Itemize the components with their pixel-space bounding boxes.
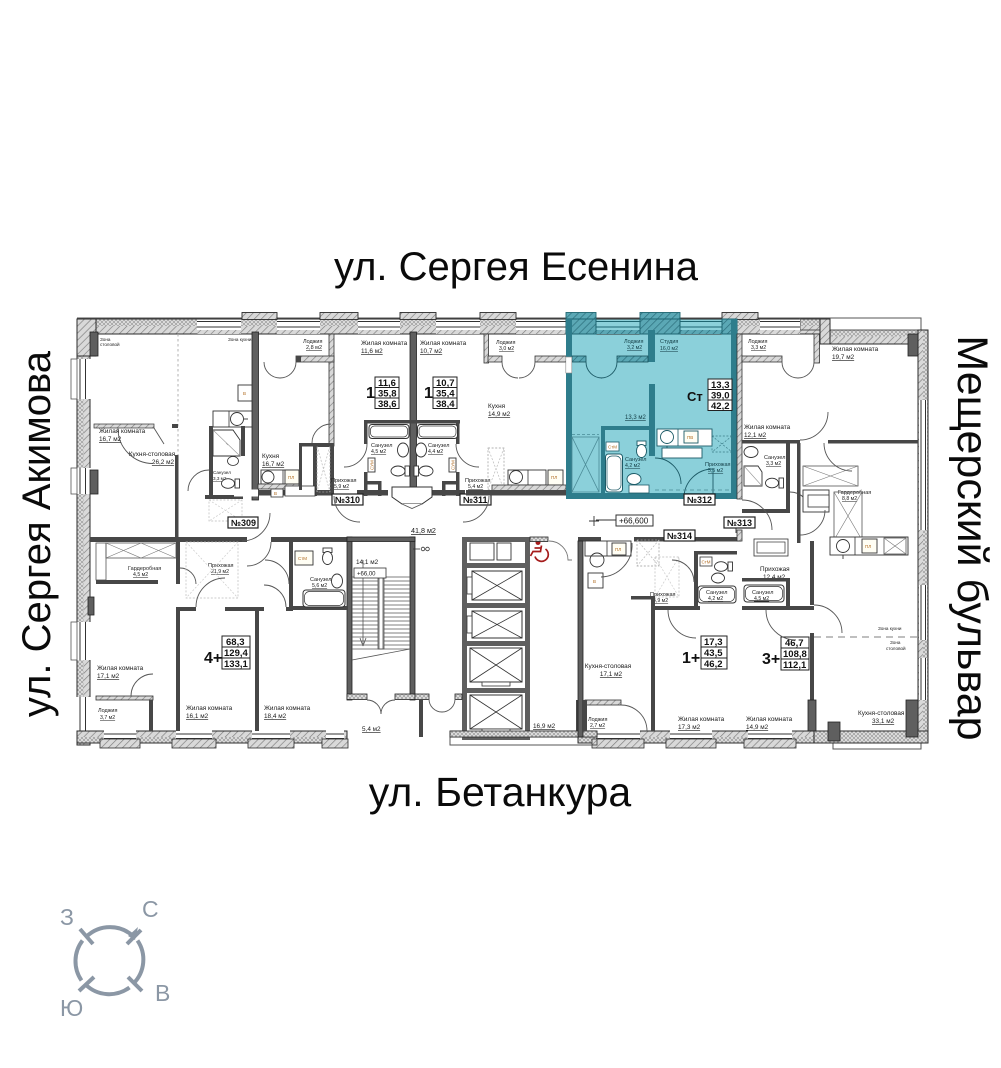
svg-text:+66,00: +66,00 [357,572,376,578]
svg-text:17,1 м2: 17,1 м2 [600,671,623,678]
svg-text:ул. Бетанкура: ул. Бетанкура [369,769,632,815]
svg-text:СтМ: СтМ [298,556,307,561]
svg-text:12,1 м2: 12,1 м2 [744,432,767,439]
svg-text:42,2: 42,2 [711,401,730,412]
svg-text:ПЛ: ПЛ [551,475,557,480]
svg-text:68,3: 68,3 [226,637,245,648]
svg-text:4,4 м2: 4,4 м2 [428,449,443,455]
svg-text:Ст: Ст [687,389,703,404]
svg-text:1: 1 [366,385,375,402]
svg-text:5,9 м2: 5,9 м2 [334,484,349,490]
svg-text:43,5: 43,5 [704,648,723,659]
svg-text:Зона кухни: Зона кухни [878,626,902,631]
svg-text:Прихожая: Прихожая [760,566,790,573]
svg-text:№314: №314 [667,531,692,541]
svg-text:ПЛ: ПЛ [288,475,294,480]
svg-text:Жилая комната: Жилая комната [744,424,791,431]
svg-text:Кухня-столовая: Кухня-столовая [858,710,905,717]
svg-text:41,8 м2: 41,8 м2 [411,526,436,535]
svg-text:Жилая комната: Жилая комната [99,428,146,435]
svg-text:№309: №309 [231,518,256,528]
svg-text:№311: №311 [463,495,488,505]
svg-text:18,4 м2: 18,4 м2 [264,713,287,720]
svg-text:Жилая комната: Жилая комната [186,705,233,712]
svg-text:Ю: Ю [60,995,83,1021]
svg-text:10,7 м2: 10,7 м2 [420,348,443,355]
svg-text:С: С [142,896,159,922]
svg-text:4,5 м2: 4,5 м2 [371,449,386,455]
svg-text:5,4 м2: 5,4 м2 [362,726,381,733]
svg-text:2,8 м2: 2,8 м2 [306,345,322,351]
svg-text:4,2 м2: 4,2 м2 [708,596,723,602]
svg-text:СтМ: СтМ [608,445,617,450]
svg-text:Жилая комната: Жилая комната [97,665,144,672]
svg-text:СУМ: СУМ [370,460,375,470]
svg-text:38,6: 38,6 [378,399,397,410]
svg-text:В: В [155,980,170,1006]
svg-text:17,3: 17,3 [704,637,723,648]
svg-text:Санузел: Санузел [213,470,231,475]
svg-text:ул. Сергея Есенина: ул. Сергея Есенина [334,245,699,289]
svg-text:4,2 м2: 4,2 м2 [625,463,640,469]
svg-text:14,1 м2: 14,1 м2 [356,559,379,566]
svg-text:В: В [593,579,596,584]
svg-text:38,4: 38,4 [436,399,455,410]
svg-text:16,0 м2: 16,0 м2 [660,346,678,352]
svg-text:СУМ: СУМ [451,460,456,470]
svg-text:Жилая комната: Жилая комната [361,340,408,347]
svg-text:Жилая комната: Жилая комната [746,716,793,723]
svg-text:5,4 м2: 5,4 м2 [468,484,483,490]
svg-text:4,5 м2: 4,5 м2 [754,596,769,602]
svg-text:3,7 м2: 3,7 м2 [100,715,115,721]
svg-text:№310: №310 [335,495,360,505]
svg-text:13,3 м2: 13,3 м2 [625,415,646,421]
svg-text:3+: 3+ [762,651,780,668]
svg-text:столовой: столовой [886,645,906,651]
svg-text:1: 1 [424,385,433,402]
svg-text:Кухня-столовая: Кухня-столовая [129,451,176,458]
svg-text:№312: №312 [687,495,712,505]
svg-text:19,7 м2: 19,7 м2 [832,354,855,361]
svg-text:129,4: 129,4 [224,648,248,659]
svg-text:16,1 м2: 16,1 м2 [186,713,209,720]
svg-text:СтМ: СтМ [702,560,711,565]
svg-text:112,1: 112,1 [783,660,807,671]
svg-text:В: В [274,491,277,496]
svg-text:ПЛ: ПЛ [615,547,621,552]
svg-text:Жилая комната: Жилая комната [678,716,725,723]
svg-text:ул. Сергея Акимова: ул. Сергея Акимова [15,350,59,717]
svg-text:В: В [243,391,246,396]
svg-text:16,9 м2: 16,9 м2 [533,723,556,730]
svg-text:Кухня-столовая: Кухня-столовая [585,663,632,670]
svg-text:Зона кухни: Зона кухни [228,337,252,342]
svg-text:2,7 м2: 2,7 м2 [590,723,605,729]
svg-text:Жилая комната: Жилая комната [264,705,311,712]
svg-text:14,9 м2: 14,9 м2 [488,411,511,418]
svg-text:4,9 м2: 4,9 м2 [653,598,668,604]
svg-text:З: З [60,904,74,930]
svg-text:3,3 м2: 3,3 м2 [766,461,781,467]
svg-text:16,7 м2: 16,7 м2 [262,461,285,468]
svg-text:33,1 м2: 33,1 м2 [872,718,895,725]
svg-text:17,3 м2: 17,3 м2 [678,724,701,731]
svg-text:3,3 м2: 3,3 м2 [751,345,766,351]
svg-text:46,2: 46,2 [704,659,723,670]
svg-text:133,1: 133,1 [224,659,248,670]
svg-text:Кухня: Кухня [488,403,506,410]
svg-text:108,8: 108,8 [783,649,807,660]
svg-text:4,5 м2: 4,5 м2 [133,572,148,578]
svg-text:4+: 4+ [204,650,222,667]
svg-text:3,0 м2: 3,0 м2 [499,346,514,352]
svg-text:Жилая комната: Жилая комната [832,346,879,353]
svg-text:26,2 м2: 26,2 м2 [152,459,175,466]
svg-text:16,7 м2: 16,7 м2 [99,436,122,443]
svg-text:ПЛ: ПЛ [865,544,871,549]
svg-text:столовой: столовой [100,341,120,347]
svg-text:Зона: Зона [890,640,901,645]
svg-text:8,8 м2: 8,8 м2 [842,496,857,502]
svg-text:Лоджия: Лоджия [98,708,118,714]
svg-text:№313: №313 [727,518,752,528]
svg-text:Жилая комната: Жилая комната [420,340,467,347]
svg-text:11,6 м2: 11,6 м2 [361,348,383,355]
svg-text:17,1 м2: 17,1 м2 [97,673,120,680]
svg-text:ПВ: ПВ [687,435,693,440]
svg-text:3,2 м2: 3,2 м2 [627,345,642,351]
svg-text:14,9 м2: 14,9 м2 [746,724,769,731]
svg-text:Студия: Студия [660,339,678,345]
svg-text:5,6 м2: 5,6 м2 [312,583,327,589]
svg-text:1+: 1+ [682,650,700,667]
svg-text:+66,600: +66,600 [619,517,649,526]
svg-text:Кухня: Кухня [262,453,280,460]
svg-text:Мещерский бульвар: Мещерский бульвар [948,335,996,740]
